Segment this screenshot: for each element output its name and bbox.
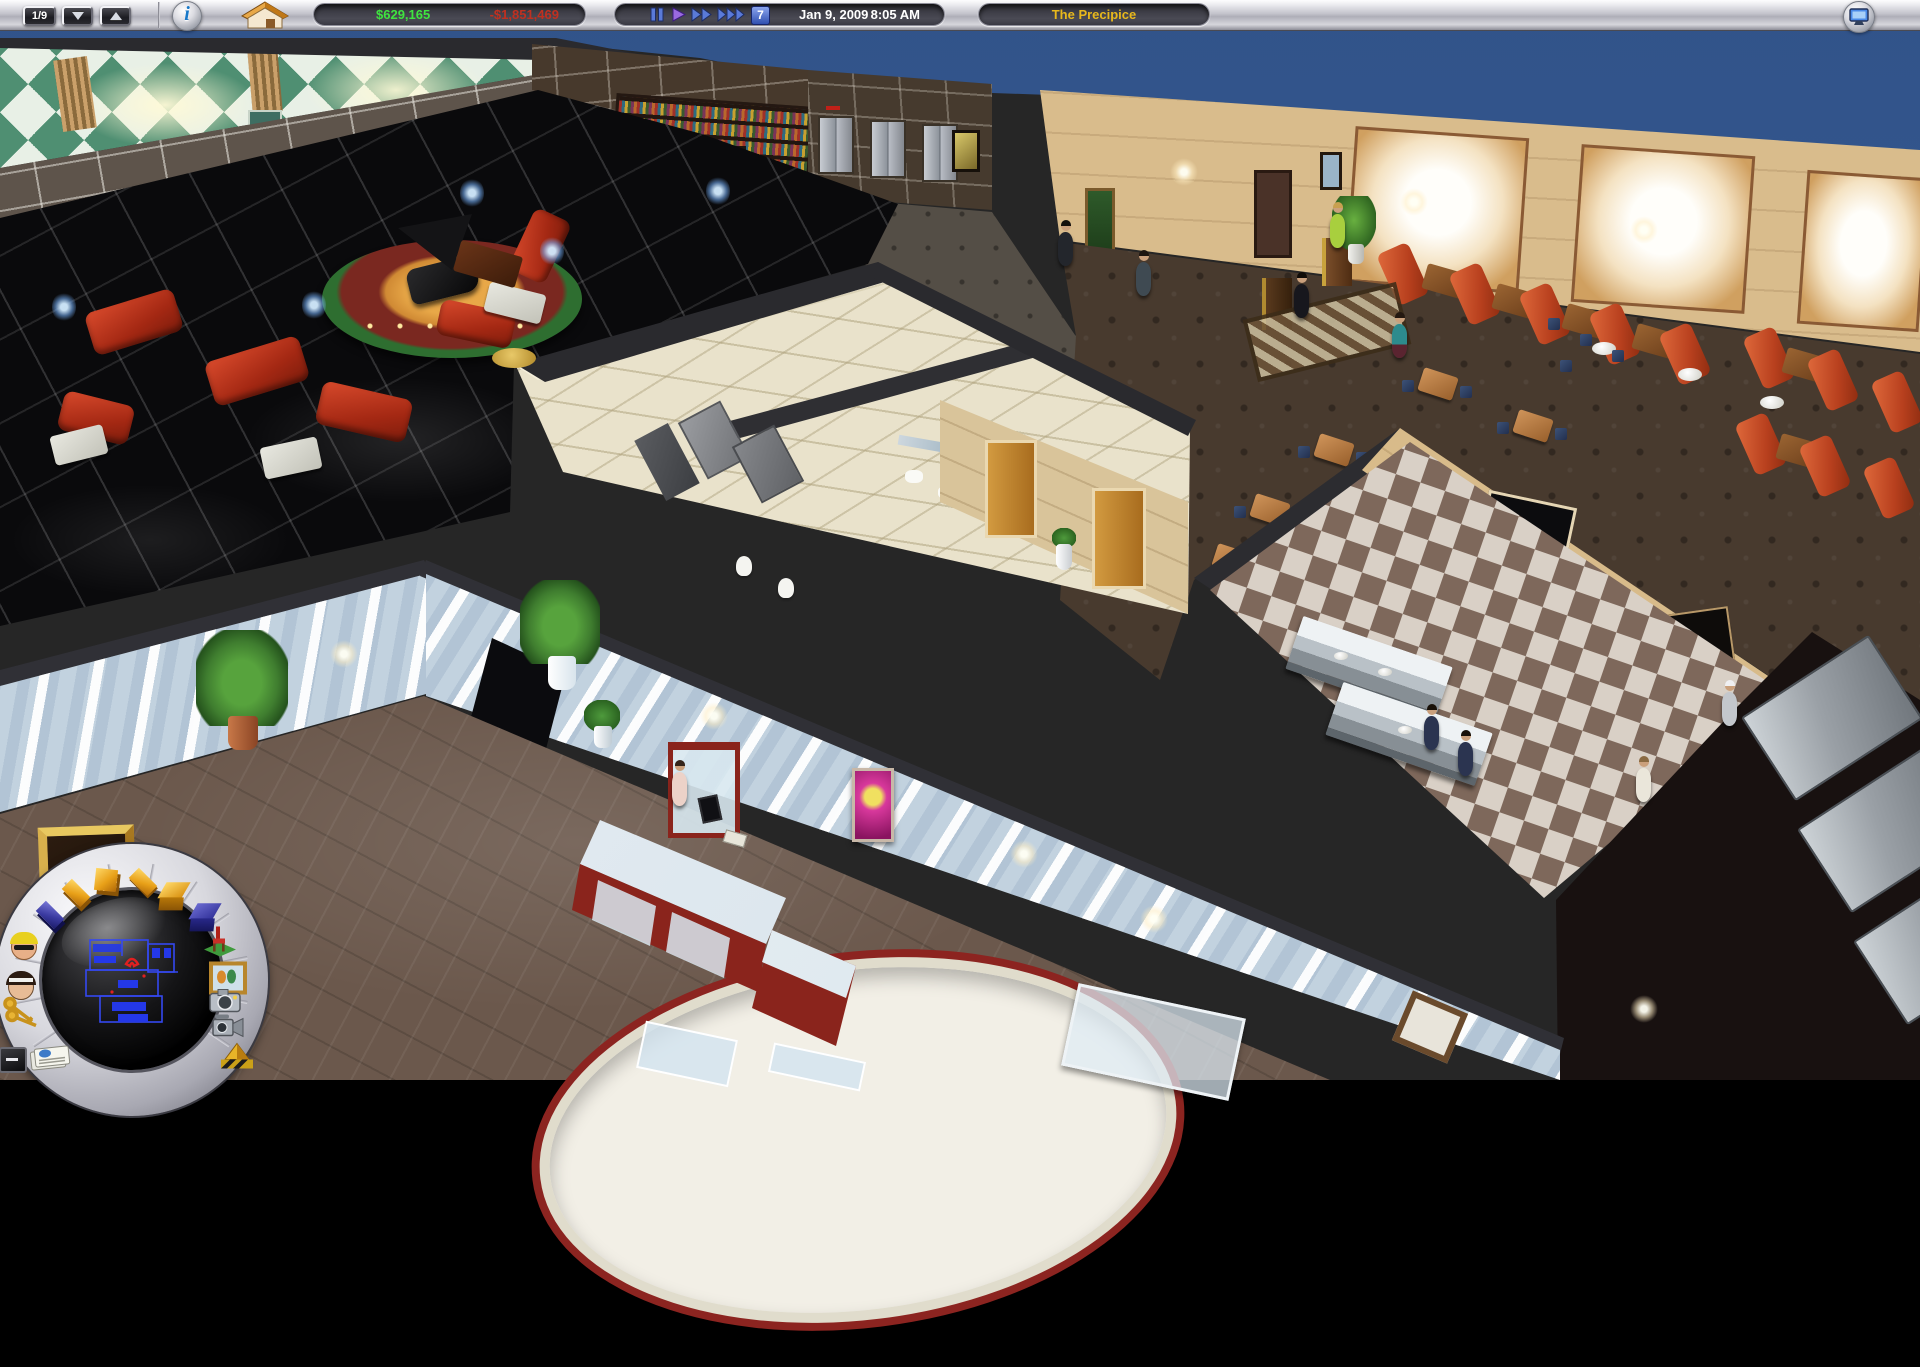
minimap-blueprint[interactable] [82,936,182,1028]
wall-sconce [1010,840,1038,868]
wall-sconce [330,640,358,668]
dish-stack [1398,726,1412,734]
restroom-door[interactable] [1092,488,1146,589]
restaurant-window [1571,144,1756,314]
desk-plant-pot [594,726,612,748]
plant-pot [1348,244,1364,264]
person-receptionist[interactable] [672,772,687,806]
torch-lamp [460,178,484,208]
game-window: 1/9 i $629,165 -$1,851,469 [0,0,1920,1080]
toilet[interactable] [736,556,752,576]
hotel-name-display: The Precipice [978,3,1210,26]
dining-chair[interactable] [1298,446,1310,458]
wall-sconce [1630,216,1658,244]
person-guest[interactable] [1392,324,1407,358]
screen-options-button[interactable] [1843,1,1875,33]
info-button[interactable]: i [172,1,202,31]
minimize-icon[interactable] [0,1047,27,1073]
small-frame[interactable] [1320,152,1342,190]
palm-plant[interactable] [520,580,600,664]
hotel-name-text: The Precipice [979,4,1209,25]
tile-gold-square-icon[interactable] [94,868,118,892]
wall-sconce [1630,995,1658,1023]
play-button[interactable] [671,7,686,22]
fast-forward-button[interactable] [691,7,713,22]
restroom-door[interactable] [985,440,1037,538]
dining-chair[interactable] [1555,428,1567,440]
person-guest-white-suit[interactable] [1636,768,1651,802]
newspaper-icon[interactable] [29,1045,71,1078]
elevator-indicator [826,106,840,110]
wall-sconce [1140,905,1168,933]
box-front-face [158,897,183,910]
torch-lamp [540,236,564,266]
hall-picture[interactable] [952,130,980,172]
dining-chair[interactable] [1497,422,1509,434]
round-table[interactable] [1678,368,1702,381]
guest-man-icon[interactable] [11,934,37,960]
elevator-door[interactable] [870,120,906,178]
dining-chair[interactable] [1460,386,1472,398]
minus-glyph [6,1058,18,1061]
sink[interactable] [905,470,923,483]
sunglasses [14,945,34,950]
floor-down-icon [72,12,84,20]
pink-painting[interactable] [852,768,894,842]
hotel-scene-view[interactable] [0,0,1920,1080]
person-guest[interactable] [1294,284,1309,318]
curtain [247,49,282,113]
radial-build-menu[interactable] [0,844,268,1116]
person-guest[interactable] [1058,232,1073,266]
dining-chair[interactable] [1560,360,1572,372]
person-guest-white-hair[interactable] [1722,692,1737,726]
restaurant-window [1797,170,1920,332]
dish-stack [1334,652,1348,660]
calendar-day-button[interactable]: 7 [751,6,770,25]
wall-sconce [1170,158,1198,186]
toolbar-divider [158,2,160,28]
elevator-door[interactable] [818,116,854,174]
torch-lamp [302,290,326,320]
toilet[interactable] [778,578,794,598]
main-toolbar: 1/9 i $629,165 -$1,851,469 [0,0,1920,31]
person-waiter[interactable] [1330,214,1345,248]
pause-button[interactable] [649,7,665,22]
loss-value: -$1,851,469 [490,4,559,25]
porcelain-pot [548,656,576,690]
dining-chair[interactable] [1612,350,1624,362]
time-text: 8:05 AM [871,4,920,25]
clay-pot [228,716,258,750]
palm-plant[interactable] [196,630,288,726]
hotel-house-icon[interactable] [241,1,289,29]
money-display[interactable]: $629,165 -$1,851,469 [313,3,586,26]
floor-up-icon [110,12,122,20]
round-table[interactable] [1760,396,1784,409]
info-icon: i [173,3,201,26]
furniture-chair-icon[interactable] [203,923,237,962]
ottoman[interactable] [492,348,536,368]
picture-figure [217,971,226,984]
fastest-forward-button[interactable] [717,7,747,22]
balance-value: $629,165 [376,4,430,25]
torch-lamp [706,176,730,206]
dining-chair[interactable] [1548,318,1560,330]
person-kitchen-staff[interactable] [1424,716,1439,750]
hall-vase [1056,544,1072,570]
time-control-display: 7 Jan 9, 2009 8:05 AM [614,3,945,26]
dining-chair[interactable] [1402,380,1414,392]
screen-monitor-icon [1849,8,1869,26]
person-kitchen-staff[interactable] [1458,742,1473,776]
picture-figure [227,970,236,984]
person-guest[interactable] [1136,262,1151,296]
floor-up-button[interactable] [100,6,131,26]
dish-stack [1378,668,1392,676]
wall-sconce [1400,188,1428,216]
construction-icon[interactable] [219,1042,255,1077]
floor-indicator[interactable]: 1/9 [23,6,56,26]
wall-sconce [700,702,728,730]
dining-chair[interactable] [1234,506,1246,518]
torch-lamp [52,292,76,322]
date-text: Jan 9, 2009 [799,4,868,25]
floor-down-button[interactable] [62,6,93,26]
dining-chair[interactable] [1580,334,1592,346]
room-keys-icon[interactable] [2,996,42,1035]
headband [9,978,33,982]
restaurant-door[interactable] [1254,170,1292,258]
